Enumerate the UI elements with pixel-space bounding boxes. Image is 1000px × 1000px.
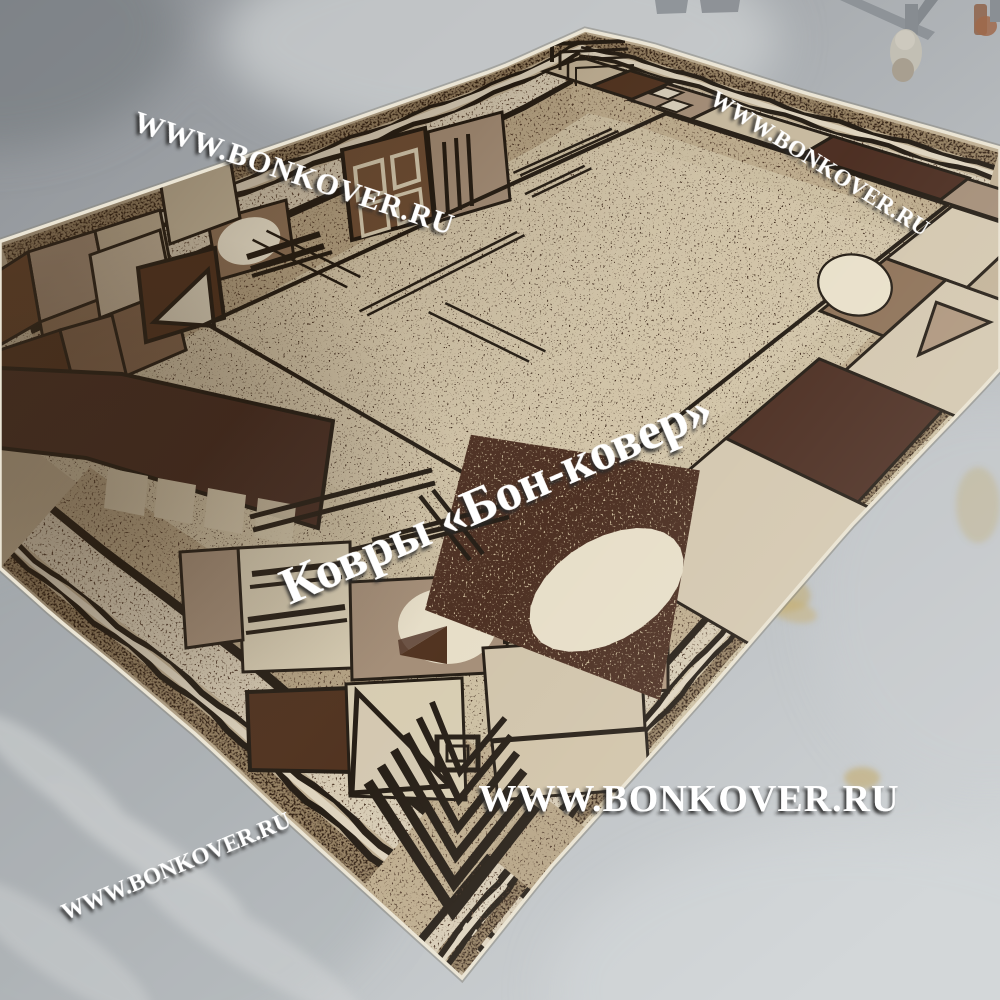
svg-text:WWW.BONKOVER.RU: WWW.BONKOVER.RU [478,778,899,820]
